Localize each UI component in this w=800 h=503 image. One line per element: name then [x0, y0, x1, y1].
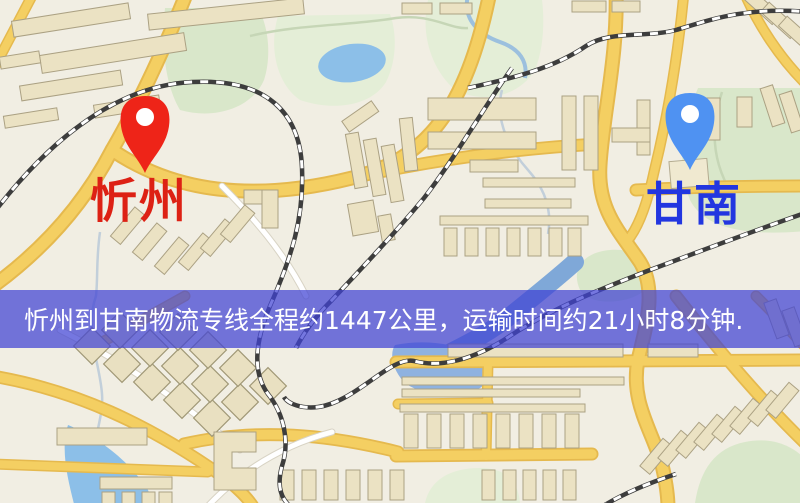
origin-label: 忻州: [90, 175, 188, 230]
route-info-banner: 忻州到甘南物流专线全程约1447公里，运输时间约21小时8分钟.: [0, 290, 800, 348]
destination-pin-hole: [681, 105, 699, 123]
destination-label: 甘南: [646, 177, 742, 231]
map-screenshot: 忻州 甘南 忻州到甘南物流专线全程约1447公里，运输时间约21小时8分钟.: [0, 0, 800, 503]
map-canvas[interactable]: 忻州 甘南: [0, 0, 800, 503]
origin-pin-hole: [136, 108, 154, 126]
route-info-text: 忻州到甘南物流专线全程约1447公里，运输时间约21小时8分钟.: [0, 301, 743, 337]
